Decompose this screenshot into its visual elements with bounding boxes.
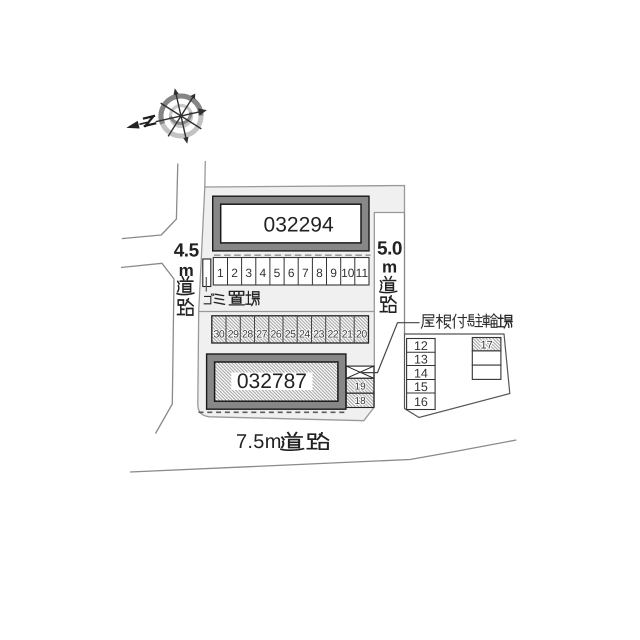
svg-text:18: 18 [355, 396, 367, 407]
svg-text:14: 14 [414, 366, 428, 380]
svg-text:5.0: 5.0 [377, 238, 402, 259]
svg-text:15: 15 [414, 380, 428, 394]
svg-text:20: 20 [356, 329, 367, 341]
svg-text:11: 11 [356, 266, 369, 280]
svg-text:25: 25 [285, 329, 296, 341]
svg-text:5: 5 [274, 266, 281, 280]
svg-text:12: 12 [414, 339, 428, 353]
svg-text:m: m [179, 261, 194, 280]
svg-text:17: 17 [480, 339, 492, 351]
svg-text:1: 1 [217, 266, 224, 280]
svg-text:2: 2 [231, 266, 238, 280]
svg-text:7.5m: 7.5m [236, 431, 282, 453]
svg-text:16: 16 [414, 395, 428, 409]
svg-text:19: 19 [355, 381, 367, 392]
svg-text:032294: 032294 [264, 214, 334, 237]
svg-text:4.5: 4.5 [174, 241, 200, 262]
svg-text:13: 13 [414, 353, 428, 367]
svg-text:4: 4 [260, 266, 267, 280]
svg-text:10: 10 [341, 266, 355, 280]
svg-text:24: 24 [299, 329, 310, 341]
svg-text:23: 23 [313, 329, 324, 341]
svg-text:032787: 032787 [237, 370, 307, 393]
svg-text:29: 29 [228, 329, 239, 341]
svg-text:30: 30 [214, 329, 225, 341]
svg-text:m: m [382, 258, 397, 277]
svg-text:6: 6 [288, 266, 295, 280]
svg-text:21: 21 [342, 329, 353, 341]
svg-text:27: 27 [256, 329, 267, 341]
svg-text:26: 26 [271, 329, 282, 341]
svg-text:28: 28 [242, 329, 253, 341]
svg-text:9: 9 [330, 266, 337, 280]
svg-text:3: 3 [245, 266, 252, 280]
svg-text:22: 22 [328, 329, 339, 341]
svg-text:8: 8 [316, 266, 323, 280]
svg-text:7: 7 [302, 266, 309, 280]
